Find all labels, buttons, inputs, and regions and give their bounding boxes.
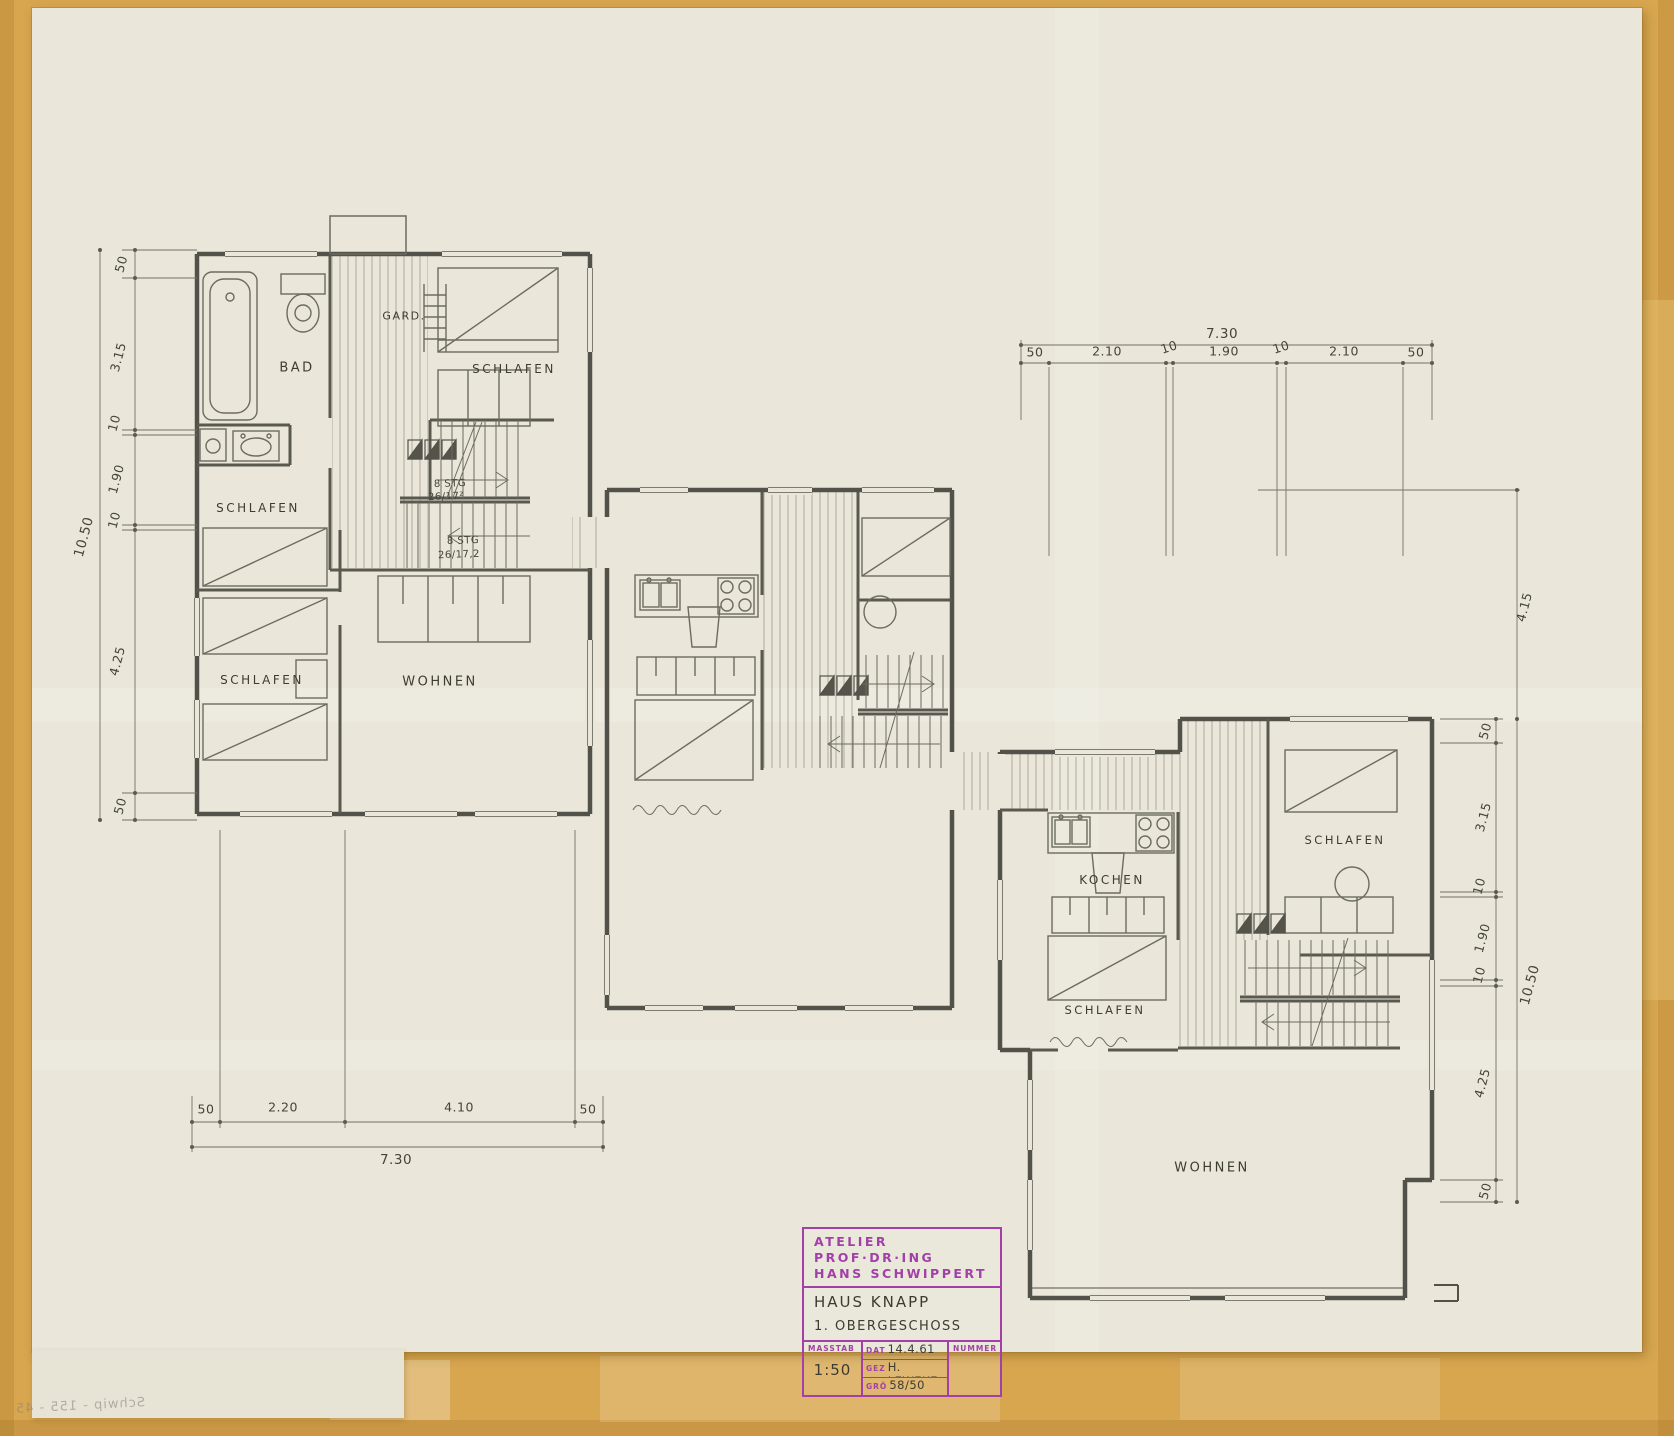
radiator — [633, 806, 721, 815]
project-title: HAUS KNAPP — [814, 1293, 992, 1311]
toilet — [281, 274, 325, 294]
nummer-label: NUMMER — [949, 1342, 1000, 1353]
dim-top-5: 2.10 — [1329, 344, 1359, 359]
dim-bottom-1: 2.20 — [268, 1100, 298, 1115]
stair-note-flight1-line1: 8 STG — [434, 478, 467, 490]
room-label-schlafen-bottom-left: SCHLAFEN — [220, 673, 304, 687]
room-label-schlafen-mid-left: SCHLAFEN — [216, 501, 300, 515]
floor-plan-drawing — [0, 0, 1674, 1436]
dat-label: DAT — [863, 1344, 888, 1355]
room-label-wohnen-right: WOHNEN — [1174, 1161, 1250, 1176]
masstab-value: 1:50 — [804, 1361, 861, 1379]
masstab-cell: MASSTAB 1:50 — [804, 1342, 862, 1395]
masstab-label: MASSTAB — [804, 1342, 861, 1353]
stamp-header: ATELIER PROF·DR·ING HANS SCHWIPPERT — [804, 1229, 1000, 1288]
dim-bottom-0: 50 — [198, 1102, 215, 1117]
kitchen-unit — [635, 575, 758, 647]
stair-note-flight1-line2: 26/17² — [428, 491, 464, 503]
gro-row: GRÖ 58/50 — [863, 1378, 947, 1395]
dat-row: DAT 14.4.61 — [863, 1342, 947, 1360]
date-cells: DAT 14.4.61 GEZ H. LEWEKE GRÖ 58/50 — [862, 1342, 948, 1395]
gez-label: GEZ — [863, 1362, 888, 1373]
gro-value: 58/50 — [889, 1378, 925, 1392]
gro-label: GRÖ — [863, 1380, 889, 1391]
dim-top-1: 2.10 — [1092, 344, 1122, 359]
wc — [200, 429, 226, 461]
canopy — [330, 216, 406, 254]
drawing-board: BAD GARD. SCHLAFEN SCHLAFEN SCHLAFEN WOH… — [0, 0, 1674, 1436]
dim-top-6: 50 — [1408, 345, 1425, 360]
stair-note-flight2-line2: 26/17,2 — [438, 549, 480, 561]
room-label-schlafen-right-mid: SCHLAFEN — [1065, 1003, 1146, 1017]
radiator — [1050, 1038, 1127, 1047]
sheet-title: 1. OBERGESCHOSS — [814, 1319, 992, 1334]
room-label-schlafen-right-top: SCHLAFEN — [1305, 833, 1386, 847]
dim-top-total: 7.30 — [1206, 326, 1238, 342]
dim-bottom-2: 4.10 — [444, 1100, 474, 1115]
room-label-schlafen-top-right: SCHLAFEN — [472, 362, 556, 376]
dim-bottom-total: 7.30 — [380, 1152, 412, 1168]
dim-top-3: 1.90 — [1209, 344, 1239, 359]
room-label-kochen: KOCHEN — [1079, 873, 1145, 887]
dat-value: 14.4.61 — [888, 1342, 935, 1356]
bathtub — [203, 272, 257, 420]
atelier-name-line1: ATELIER PROF·DR·ING — [814, 1234, 992, 1266]
nummer-cell: NUMMER — [948, 1342, 1000, 1395]
title-block-stamp: ATELIER PROF·DR·ING HANS SCHWIPPERT HAUS… — [802, 1227, 1002, 1397]
stamp-project-section: HAUS KNAPP 1. OBERGESCHOSS — [804, 1288, 1000, 1342]
room-label-wohnen-left: WOHNEN — [402, 675, 478, 690]
round-table — [1335, 867, 1369, 901]
atelier-name-line2: HANS SCHWIPPERT — [814, 1266, 992, 1282]
dim-top-0: 50 — [1027, 345, 1044, 360]
gez-value: H. LEWEKE — [888, 1360, 947, 1378]
room-label-bad: BAD — [279, 361, 314, 376]
gez-row: GEZ H. LEWEKE — [863, 1360, 947, 1378]
dim-bottom-3: 50 — [580, 1102, 597, 1117]
room-label-gard: GARD. — [382, 310, 425, 323]
stair-note-flight2-line1: 8 STG — [447, 535, 480, 547]
stamp-table: MASSTAB 1:50 DAT 14.4.61 GEZ H. LEWEKE G… — [804, 1342, 1000, 1395]
